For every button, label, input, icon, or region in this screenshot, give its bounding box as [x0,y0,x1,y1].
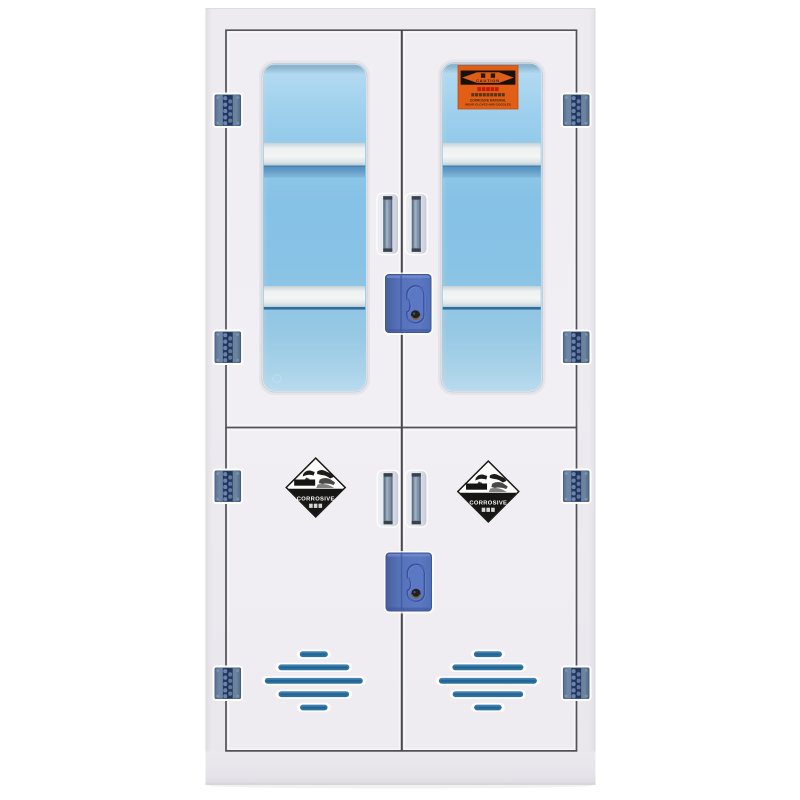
svg-text:CORROSIVE: CORROSIVE [297,497,335,503]
svg-text:WEAR GLOVES AND GOGGLES: WEAR GLOVES AND GOGGLES [465,103,511,107]
svg-text:CAUTION: CAUTION [476,78,500,83]
svg-text:CORROSIVE: CORROSIVE [469,501,507,507]
